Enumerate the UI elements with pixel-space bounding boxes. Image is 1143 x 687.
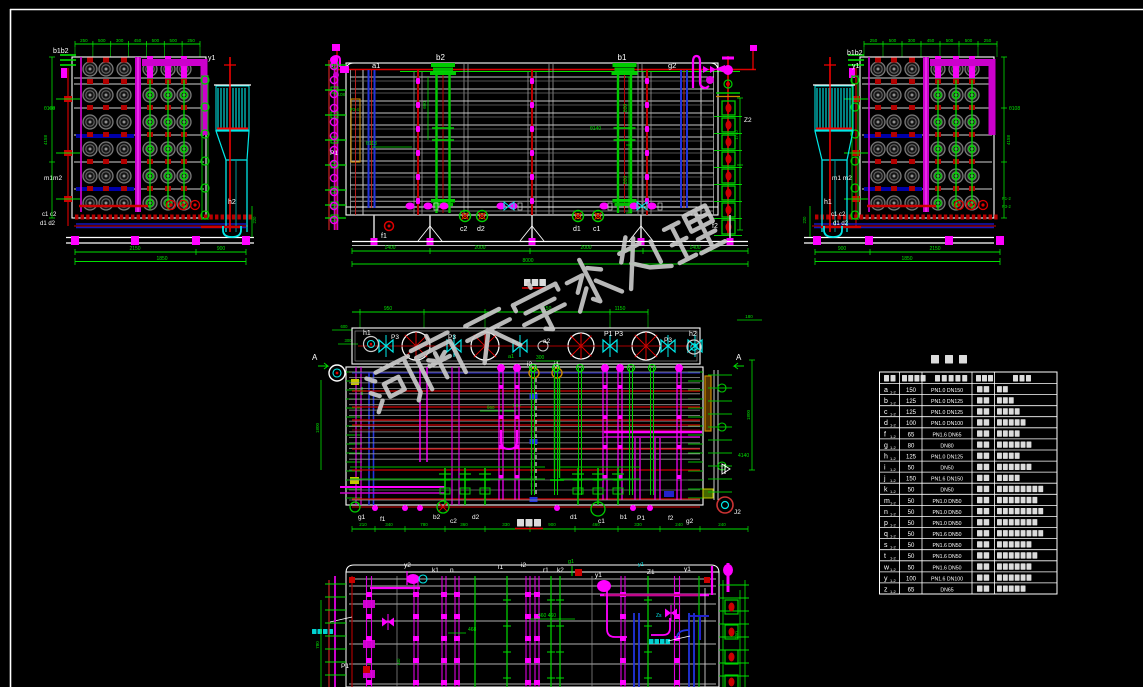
svg-text:i: i xyxy=(884,465,886,472)
svg-text:80: 80 xyxy=(908,443,915,449)
svg-text:460: 460 xyxy=(592,522,600,527)
svg-text:Z2: Z2 xyxy=(744,117,752,124)
svg-text:d1: d1 xyxy=(573,226,581,233)
svg-text:250: 250 xyxy=(984,38,992,43)
svg-text:n: n xyxy=(884,509,888,516)
svg-text:1-2: 1-2 xyxy=(890,567,897,572)
svg-text:300: 300 xyxy=(116,38,124,43)
svg-text:300: 300 xyxy=(908,38,916,43)
svg-text:p: p xyxy=(884,520,888,527)
svg-text:1-2: 1-2 xyxy=(890,467,897,472)
svg-text:800: 800 xyxy=(623,176,629,185)
svg-text:780: 780 xyxy=(315,641,320,649)
svg-text:θ108: θ108 xyxy=(1009,106,1020,112)
svg-text:DN65: DN65 xyxy=(940,587,953,593)
svg-text:y1: y1 xyxy=(638,562,644,568)
svg-text:b1: b1 xyxy=(618,53,627,62)
svg-text:330: 330 xyxy=(634,522,642,527)
svg-text:1-2: 1-2 xyxy=(890,456,897,461)
svg-text:330: 330 xyxy=(502,522,510,527)
svg-text:a: a xyxy=(884,387,888,394)
svg-text:Zs: Zs xyxy=(656,613,662,619)
svg-text:450: 450 xyxy=(134,38,142,43)
svg-text:h2: h2 xyxy=(689,331,697,338)
svg-text:1400: 1400 xyxy=(689,245,700,251)
svg-text:1-2: 1-2 xyxy=(890,534,897,539)
svg-text:1-2: 1-2 xyxy=(890,489,897,494)
svg-text:c1 c2: c1 c2 xyxy=(42,212,57,218)
svg-text:d: d xyxy=(884,420,888,427)
svg-text:900: 900 xyxy=(548,522,556,527)
svg-text:500: 500 xyxy=(889,38,897,43)
svg-text:P1: P1 xyxy=(637,515,645,522)
svg-text:220: 220 xyxy=(252,216,257,224)
svg-text:b2: b2 xyxy=(436,53,445,62)
svg-text:a2: a2 xyxy=(543,338,551,345)
svg-text:c2: c2 xyxy=(460,226,468,233)
svg-text:y1: y1 xyxy=(852,63,860,70)
svg-text:1740: 1740 xyxy=(734,130,739,140)
svg-text:P1-2: P1-2 xyxy=(1002,196,1012,201)
svg-text:d2: d2 xyxy=(472,514,480,521)
svg-text:1-2: 1-2 xyxy=(890,511,897,516)
svg-text:a1: a1 xyxy=(372,61,380,70)
svg-text:P3-4: P3-4 xyxy=(350,107,360,112)
svg-text:i2: i2 xyxy=(521,562,526,569)
svg-text:300: 300 xyxy=(345,338,353,343)
svg-text:1-2: 1-2 xyxy=(890,401,897,406)
svg-text:g1: g1 xyxy=(358,514,366,521)
svg-text:PN1.6 DN50: PN1.6 DN50 xyxy=(932,532,961,538)
svg-text:θ60: θ60 xyxy=(487,405,495,410)
svg-text:50: 50 xyxy=(908,488,915,494)
svg-text:PN1.6 DN50: PN1.6 DN50 xyxy=(932,565,961,571)
svg-text:a1: a1 xyxy=(508,354,514,360)
svg-text:g2: g2 xyxy=(686,518,694,525)
svg-text:h1: h1 xyxy=(363,330,371,337)
svg-text:PN1.0 DN125: PN1.0 DN125 xyxy=(931,399,963,405)
svg-text:d1 d2: d1 d2 xyxy=(40,221,56,227)
svg-text:k: k xyxy=(884,487,888,494)
svg-text:c2: c2 xyxy=(450,518,457,525)
svg-text:1850: 1850 xyxy=(156,256,167,262)
svg-text:y1: y1 xyxy=(684,566,691,573)
svg-text:500: 500 xyxy=(98,38,106,43)
svg-text:150: 150 xyxy=(906,477,917,483)
svg-text:P3: P3 xyxy=(391,334,399,341)
svg-text:360: 360 xyxy=(460,522,468,527)
svg-text:d1: d1 xyxy=(570,514,578,521)
svg-text:1-2: 1-2 xyxy=(890,478,897,483)
svg-text:PN1.0 DN100: PN1.0 DN100 xyxy=(931,421,963,427)
svg-text:250: 250 xyxy=(80,38,88,43)
svg-text:P1 P3: P1 P3 xyxy=(604,331,623,338)
svg-text:k1: k1 xyxy=(432,567,439,574)
svg-text:j: j xyxy=(883,476,886,483)
svg-text:500: 500 xyxy=(965,38,973,43)
svg-text:b1b2: b1b2 xyxy=(847,50,863,57)
svg-text:1800: 1800 xyxy=(315,422,320,433)
svg-text:c: c xyxy=(884,409,888,416)
svg-text:240: 240 xyxy=(718,522,726,527)
svg-text:950: 950 xyxy=(384,306,393,312)
svg-text:q: q xyxy=(884,531,888,538)
svg-text:A: A xyxy=(312,353,318,362)
svg-text:g: g xyxy=(884,442,888,449)
svg-text:50: 50 xyxy=(908,499,915,505)
svg-text:250: 250 xyxy=(870,38,878,43)
svg-text:220: 220 xyxy=(802,216,807,224)
svg-text:P3: P3 xyxy=(664,337,672,344)
svg-text:y: y xyxy=(884,575,888,582)
svg-text:500: 500 xyxy=(946,38,954,43)
svg-text:1-2: 1-2 xyxy=(890,500,897,505)
svg-text:c1 c2: c1 c2 xyxy=(831,212,846,218)
svg-text:150: 150 xyxy=(906,388,917,394)
svg-text:s: s xyxy=(884,542,888,549)
svg-text:f1: f1 xyxy=(381,233,387,240)
svg-text:y2: y2 xyxy=(404,562,411,569)
svg-text:1-2: 1-2 xyxy=(890,390,897,395)
svg-text:y1: y1 xyxy=(595,572,602,579)
svg-text:140: 140 xyxy=(396,658,401,666)
svg-text:1-2: 1-2 xyxy=(890,589,897,594)
svg-text:1-2: 1-2 xyxy=(890,556,897,561)
svg-text:d1 d2: d1 d2 xyxy=(833,221,849,227)
svg-text:4158: 4158 xyxy=(1006,134,1011,145)
svg-text:1-2: 1-2 xyxy=(890,578,897,583)
svg-text:1400: 1400 xyxy=(384,245,395,251)
svg-text:g2: g2 xyxy=(668,61,676,70)
svg-text:h1: h1 xyxy=(824,199,832,206)
svg-text:1-2: 1-2 xyxy=(890,445,897,450)
svg-text:θ60: θ60 xyxy=(513,403,521,408)
svg-text:125: 125 xyxy=(906,455,917,461)
svg-text:z: z xyxy=(884,586,888,593)
svg-text:J2: J2 xyxy=(734,509,741,516)
svg-text:θ140: θ140 xyxy=(590,126,601,132)
svg-text:w: w xyxy=(883,564,890,571)
svg-text:i1: i1 xyxy=(498,564,503,571)
svg-text:k2: k2 xyxy=(557,567,564,574)
svg-text:750: 750 xyxy=(734,631,739,639)
svg-text:50: 50 xyxy=(908,543,915,549)
svg-text:50: 50 xyxy=(908,510,915,516)
svg-text:DN80: DN80 xyxy=(940,443,953,449)
svg-text:500: 500 xyxy=(152,38,160,43)
svg-text:P1: P1 xyxy=(330,150,338,157)
svg-text:A: A xyxy=(736,353,742,362)
svg-text:θ108: θ108 xyxy=(44,106,55,112)
svg-text:1-2: 1-2 xyxy=(890,545,897,550)
svg-text:500: 500 xyxy=(169,38,177,43)
svg-text:1800: 1800 xyxy=(746,409,751,420)
svg-text:DN50: DN50 xyxy=(940,488,953,494)
svg-text:y1: y1 xyxy=(208,55,216,62)
svg-text:8000: 8000 xyxy=(522,258,533,264)
svg-text:125: 125 xyxy=(906,410,917,416)
svg-text:f: f xyxy=(884,431,886,438)
svg-text:125: 125 xyxy=(906,399,917,405)
svg-text:240: 240 xyxy=(675,522,683,527)
svg-text:600: 600 xyxy=(341,324,349,329)
svg-text:65: 65 xyxy=(908,587,915,593)
svg-text:50: 50 xyxy=(908,521,915,527)
svg-text:h2: h2 xyxy=(228,199,236,206)
svg-text:h: h xyxy=(884,454,888,461)
svg-text:340: 340 xyxy=(385,522,393,527)
svg-text:m1m2: m1m2 xyxy=(44,175,62,182)
svg-text:f2: f2 xyxy=(668,515,674,522)
svg-text:210: 210 xyxy=(359,522,367,527)
svg-text:2150: 2150 xyxy=(929,246,940,252)
svg-text:P3-2: P3-2 xyxy=(1002,204,1012,209)
svg-text:4140: 4140 xyxy=(738,453,749,459)
svg-text:PN1.0 DN150: PN1.0 DN150 xyxy=(931,388,963,394)
svg-text:PN1.0 DN50: PN1.0 DN50 xyxy=(932,521,961,527)
svg-text:180: 180 xyxy=(745,314,753,319)
svg-text:P1: P1 xyxy=(341,663,349,670)
svg-text:800: 800 xyxy=(623,104,629,113)
svg-text:t: t xyxy=(884,553,886,560)
svg-text:600: 600 xyxy=(422,101,427,109)
svg-text:780: 780 xyxy=(420,522,428,527)
svg-text:1-2: 1-2 xyxy=(890,423,897,428)
svg-text:b: b xyxy=(884,398,888,405)
svg-text:PN1.6 DN65: PN1.6 DN65 xyxy=(932,432,961,438)
svg-text:m1 m2: m1 m2 xyxy=(832,175,852,182)
svg-text:n: n xyxy=(450,567,454,574)
svg-text:PN1.6 DN150: PN1.6 DN150 xyxy=(931,477,963,483)
svg-text:PN1.0 DN125: PN1.0 DN125 xyxy=(931,410,963,416)
svg-text:468: 468 xyxy=(468,627,477,633)
svg-text:1-2: 1-2 xyxy=(890,434,897,439)
svg-text:θ113: θ113 xyxy=(366,141,377,147)
svg-text:460 460: 460 460 xyxy=(538,613,556,619)
svg-text:g1: g1 xyxy=(568,559,574,565)
svg-text:300: 300 xyxy=(536,355,545,361)
svg-text:100: 100 xyxy=(906,421,917,427)
svg-text:1-2: 1-2 xyxy=(890,412,897,417)
svg-text:2000: 2000 xyxy=(474,245,485,251)
svg-text:PN1.6 DN50: PN1.6 DN50 xyxy=(932,554,961,560)
svg-text:b1b2: b1b2 xyxy=(53,48,69,55)
svg-text:d2: d2 xyxy=(477,226,485,233)
svg-text:65: 65 xyxy=(908,432,915,438)
svg-text:b2: b2 xyxy=(433,514,441,521)
svg-text:1-2: 1-2 xyxy=(890,523,897,528)
svg-text:100: 100 xyxy=(906,576,917,582)
svg-text:50: 50 xyxy=(908,466,915,472)
svg-text:250: 250 xyxy=(187,38,195,43)
svg-text:PN1.0 DN50: PN1.0 DN50 xyxy=(932,499,961,505)
svg-text:1850: 1850 xyxy=(901,256,912,262)
svg-text:c1: c1 xyxy=(593,226,601,233)
svg-text:50: 50 xyxy=(908,554,915,560)
svg-text:b1: b1 xyxy=(620,514,628,521)
svg-text:1150: 1150 xyxy=(615,306,626,312)
svg-text:4158: 4158 xyxy=(43,134,48,145)
svg-text:PN1.0 DN50: PN1.0 DN50 xyxy=(932,510,961,516)
svg-text:50: 50 xyxy=(908,532,915,538)
svg-text:PN1.6 DN50: PN1.6 DN50 xyxy=(932,543,961,549)
svg-text:50: 50 xyxy=(908,565,915,571)
svg-text:900: 900 xyxy=(838,246,847,252)
svg-text:PN1.0 DN125: PN1.0 DN125 xyxy=(931,455,963,461)
svg-text:PN1.6 DN100: PN1.6 DN100 xyxy=(931,576,963,582)
svg-text:900: 900 xyxy=(217,246,226,252)
svg-text:DN50: DN50 xyxy=(940,466,953,472)
svg-text:2150: 2150 xyxy=(129,246,140,252)
svg-text:450: 450 xyxy=(927,38,935,43)
svg-text:r1: r1 xyxy=(543,567,549,574)
svg-text:Z1: Z1 xyxy=(647,569,655,576)
svg-text:2000: 2000 xyxy=(580,245,591,251)
